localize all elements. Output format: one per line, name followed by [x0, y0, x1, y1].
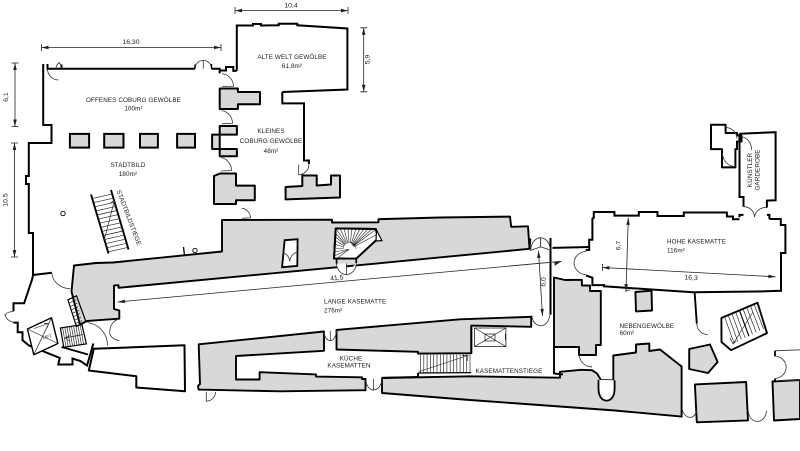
- svg-text:10,4: 10,4: [284, 3, 297, 10]
- svg-text:60m²: 60m²: [620, 330, 635, 337]
- svg-text:HOHE KASEMATTE: HOHE KASEMATTE: [667, 239, 726, 246]
- svg-text:KÜNSTLER: KÜNSTLER: [746, 152, 754, 187]
- svg-text:OFFENES COBURG GEWÖLBE: OFFENES COBURG GEWÖLBE: [86, 96, 181, 104]
- svg-text:KÜCHE: KÜCHE: [340, 355, 363, 363]
- svg-text:10,5: 10,5: [3, 193, 10, 206]
- svg-text:KASEMATTENSTIEGE: KASEMATTENSTIEGE: [476, 368, 543, 375]
- svg-text:KASEMATTEN: KASEMATTEN: [327, 363, 371, 370]
- svg-text:276m²: 276m²: [324, 308, 342, 315]
- svg-text:48m²: 48m²: [264, 148, 279, 155]
- svg-text:6,1: 6,1: [3, 92, 10, 102]
- svg-text:STADTBILD: STADTBILD: [110, 162, 145, 169]
- svg-text:116m²: 116m²: [667, 248, 685, 255]
- svg-text:180m²: 180m²: [119, 171, 137, 178]
- svg-text:6,7: 6,7: [616, 241, 623, 251]
- svg-text:41,5: 41,5: [330, 274, 344, 282]
- svg-text:ALTE WELT GEWÖLBE: ALTE WELT GEWÖLBE: [257, 53, 326, 61]
- svg-text:KLEINES: KLEINES: [257, 128, 284, 135]
- svg-text:COBURG GEWÖLBE: COBURG GEWÖLBE: [240, 137, 303, 145]
- svg-text:LANGE KASEMATTE: LANGE KASEMATTE: [324, 299, 386, 306]
- svg-text:16,30: 16,30: [122, 39, 139, 46]
- svg-text:GARDEROBE: GARDEROBE: [755, 149, 762, 190]
- svg-text:6,0: 6,0: [540, 277, 547, 287]
- svg-text:100m²: 100m²: [124, 106, 142, 113]
- svg-text:5,9: 5,9: [365, 55, 372, 65]
- svg-text:61,8m²: 61,8m²: [282, 63, 302, 70]
- svg-text:16,3: 16,3: [684, 274, 698, 282]
- svg-text:NEBENGEWÖLBE: NEBENGEWÖLBE: [620, 322, 675, 330]
